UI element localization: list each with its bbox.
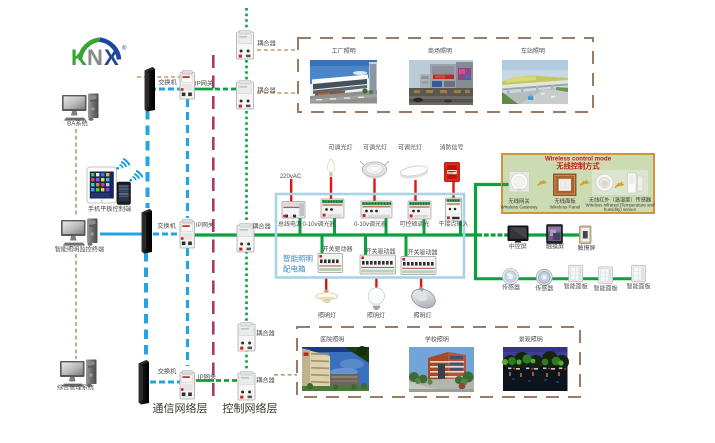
- svg-text:触摸屏: 触摸屏: [577, 244, 595, 252]
- svg-text:可调光灯: 可调光灯: [328, 144, 352, 152]
- svg-text:智能面板: 智能面板: [594, 285, 618, 293]
- svg-text:照明灯: 照明灯: [318, 312, 336, 320]
- svg-text:开关驱动器: 开关驱动器: [365, 248, 395, 256]
- svg-text:学校照明: 学校照明: [425, 336, 449, 344]
- svg-text:耦合器: 耦合器: [256, 330, 275, 338]
- svg-text:工厂照明: 工厂照明: [332, 48, 356, 55]
- svg-text:交换机: 交换机: [158, 79, 177, 87]
- svg-text:交换机: 交换机: [158, 368, 177, 376]
- svg-text:®: ®: [122, 45, 127, 52]
- svg-text:耦合器: 耦合器: [256, 377, 275, 385]
- svg-text:智能照明监控终端: 智能照明监控终端: [55, 246, 105, 254]
- svg-text:humidity) sensor: humidity) sensor: [604, 207, 637, 212]
- svg-text:Wireless Gateway: Wireless Gateway: [500, 205, 538, 210]
- svg-text:照明灯: 照明灯: [413, 312, 431, 320]
- svg-text:220vAC: 220vAC: [280, 174, 302, 180]
- svg-text:可控硕调光: 可控硕调光: [399, 220, 429, 228]
- svg-text:传感器: 传感器: [502, 284, 520, 292]
- svg-text:干接点输入: 干接点输入: [438, 220, 468, 228]
- svg-text:中控屏: 中控屏: [509, 243, 527, 251]
- svg-text:开关驱动器: 开关驱动器: [322, 245, 352, 253]
- svg-text:IP网关: IP网关: [198, 373, 216, 381]
- svg-text:智能照明: 智能照明: [283, 253, 313, 263]
- svg-text:景观照明: 景观照明: [519, 337, 543, 344]
- svg-text:配电箱: 配电箱: [283, 264, 306, 274]
- svg-text:照明灯: 照明灯: [367, 312, 385, 320]
- svg-text:K: K: [71, 45, 87, 70]
- svg-text:可调光灯: 可调光灯: [363, 144, 387, 152]
- svg-text:商场照明: 商场照明: [428, 47, 452, 55]
- svg-text:智能面板: 智能面板: [627, 283, 651, 291]
- svg-text:N: N: [87, 45, 103, 70]
- svg-text:医院照明: 医院照明: [320, 336, 344, 344]
- svg-text:车站照明: 车站照明: [521, 47, 545, 55]
- svg-text:BA系统: BA系统: [67, 120, 88, 128]
- svg-text:触摸屏: 触摸屏: [546, 243, 564, 251]
- svg-text:0-10v调光器: 0-10v调光器: [354, 220, 387, 228]
- svg-text:IP网关: IP网关: [196, 221, 214, 229]
- svg-text:耦合器: 耦合器: [257, 40, 276, 48]
- svg-text:交换机: 交换机: [157, 222, 176, 230]
- svg-text:手机平板控制端: 手机平板控制端: [88, 205, 131, 213]
- svg-text:开关驱动器: 开关驱动器: [407, 249, 437, 257]
- svg-text:控制网络层: 控制网络层: [223, 401, 278, 415]
- svg-text:总线电源: 总线电源: [278, 220, 302, 228]
- svg-text:耦合器: 耦合器: [252, 223, 271, 231]
- svg-text:智能面板: 智能面板: [564, 283, 588, 291]
- svg-text:IP网关: IP网关: [195, 80, 213, 88]
- svg-text:传感器: 传感器: [535, 285, 553, 293]
- svg-text:通信网络层: 通信网络层: [153, 401, 208, 415]
- svg-text:X: X: [104, 45, 119, 70]
- svg-text:耦合器: 耦合器: [257, 87, 276, 95]
- svg-text:可调光灯: 可调光灯: [398, 144, 422, 152]
- svg-text:综合管理系统: 综合管理系统: [57, 384, 94, 392]
- svg-text:0-10v调光器: 0-10v调光器: [302, 220, 335, 228]
- svg-text:消防信号: 消防信号: [439, 144, 463, 152]
- svg-text:无线控制方式: 无线控制方式: [555, 162, 600, 171]
- svg-text:Wireless Panel: Wireless Panel: [550, 205, 581, 210]
